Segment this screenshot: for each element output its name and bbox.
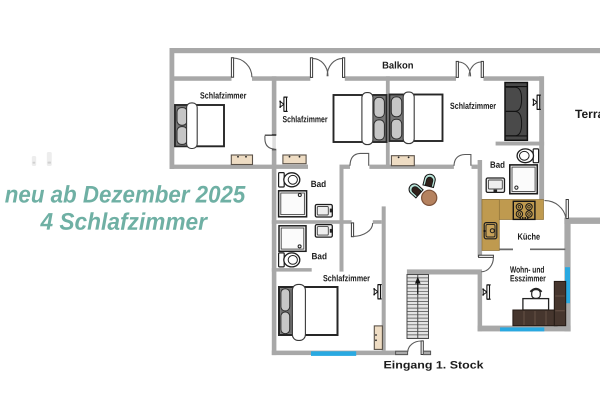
svg-text:Schlafzimmer: Schlafzimmer [200, 91, 247, 101]
svg-text:Schlafzimmer: Schlafzimmer [450, 101, 496, 111]
svg-text:Bad: Bad [311, 179, 327, 189]
svg-text:Schlafzimmer: Schlafzimmer [283, 114, 328, 124]
svg-text:Balkon: Balkon [382, 61, 414, 72]
svg-text:Bad: Bad [311, 251, 327, 261]
svg-text:Schlafzimmer: Schlafzimmer [323, 273, 370, 283]
svg-text:4 Schlafzimmer: 4 Schlafzimmer [40, 209, 209, 236]
svg-text:Küche: Küche [517, 232, 540, 242]
svg-text:Terrasse: Terrasse [575, 107, 600, 121]
svg-text:Esszimmer: Esszimmer [510, 273, 546, 283]
svg-text:Eingang 1. Stock: Eingang 1. Stock [384, 359, 485, 371]
svg-text:neu ab Dezember 2025: neu ab Dezember 2025 [5, 181, 246, 208]
svg-text:Bad: Bad [490, 160, 505, 170]
